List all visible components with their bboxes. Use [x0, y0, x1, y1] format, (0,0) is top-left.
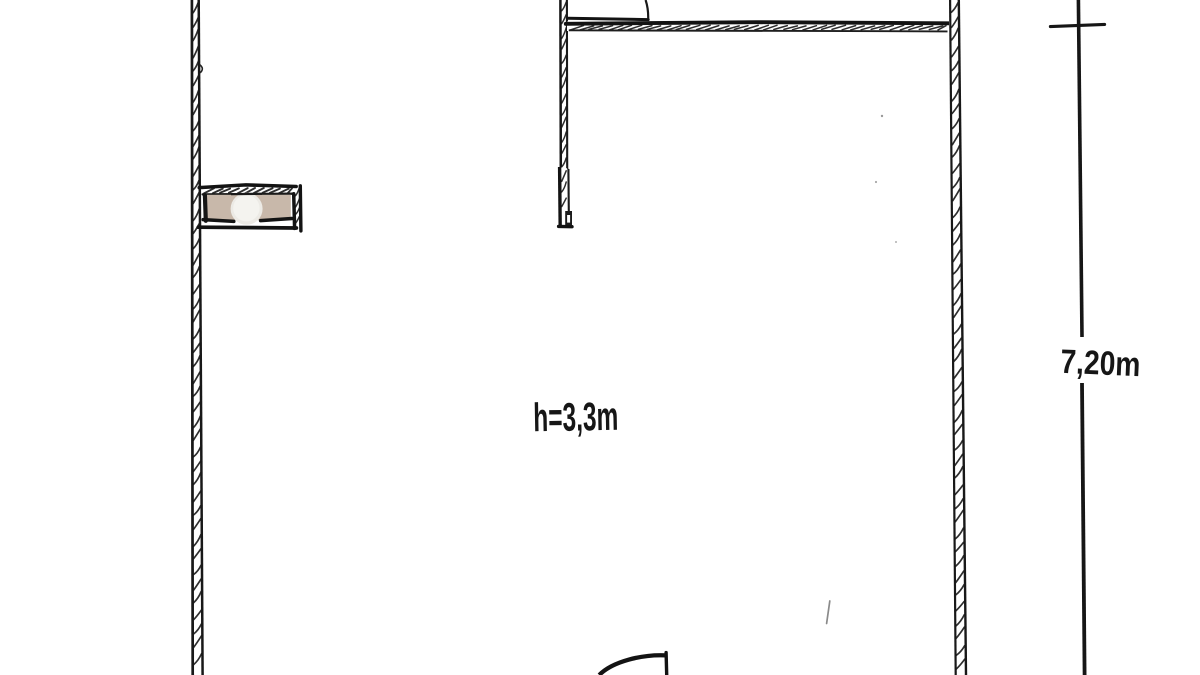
svg-text:7,20m: 7,20m [1060, 343, 1142, 384]
svg-text:h=3,3m: h=3,3m [533, 395, 619, 440]
